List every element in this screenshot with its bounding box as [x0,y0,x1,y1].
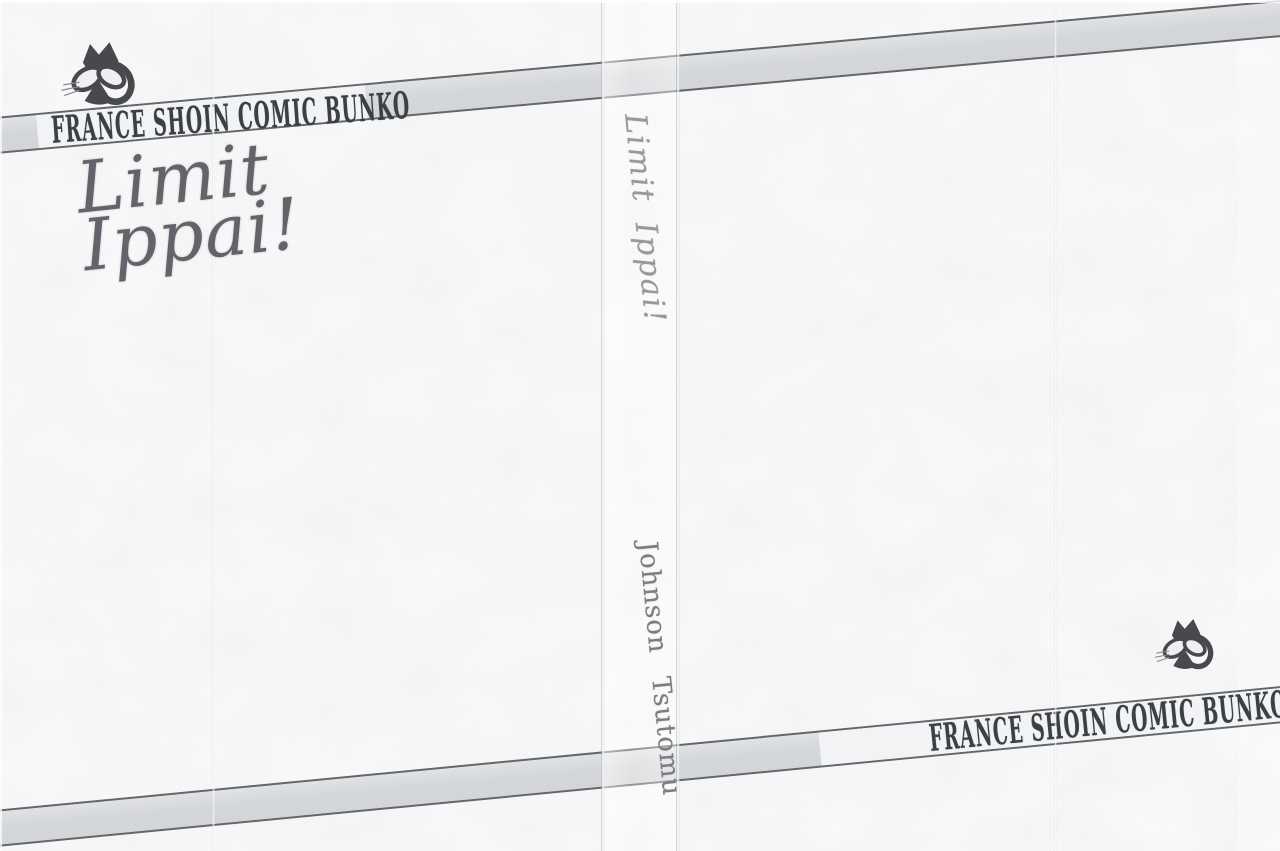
book-jacket-scan: FRANCE SHOIN COMIC BUNKO FRANCE SHOIN CO… [0,0,1280,851]
scan-edge [0,0,2,851]
scan-edge [0,0,1280,3]
cover-title-line2: Ippai! [80,195,303,276]
cat-logo-icon [1152,617,1216,675]
cover-title: Limit Ippai! [74,137,303,275]
cat-logo-icon [58,40,138,112]
